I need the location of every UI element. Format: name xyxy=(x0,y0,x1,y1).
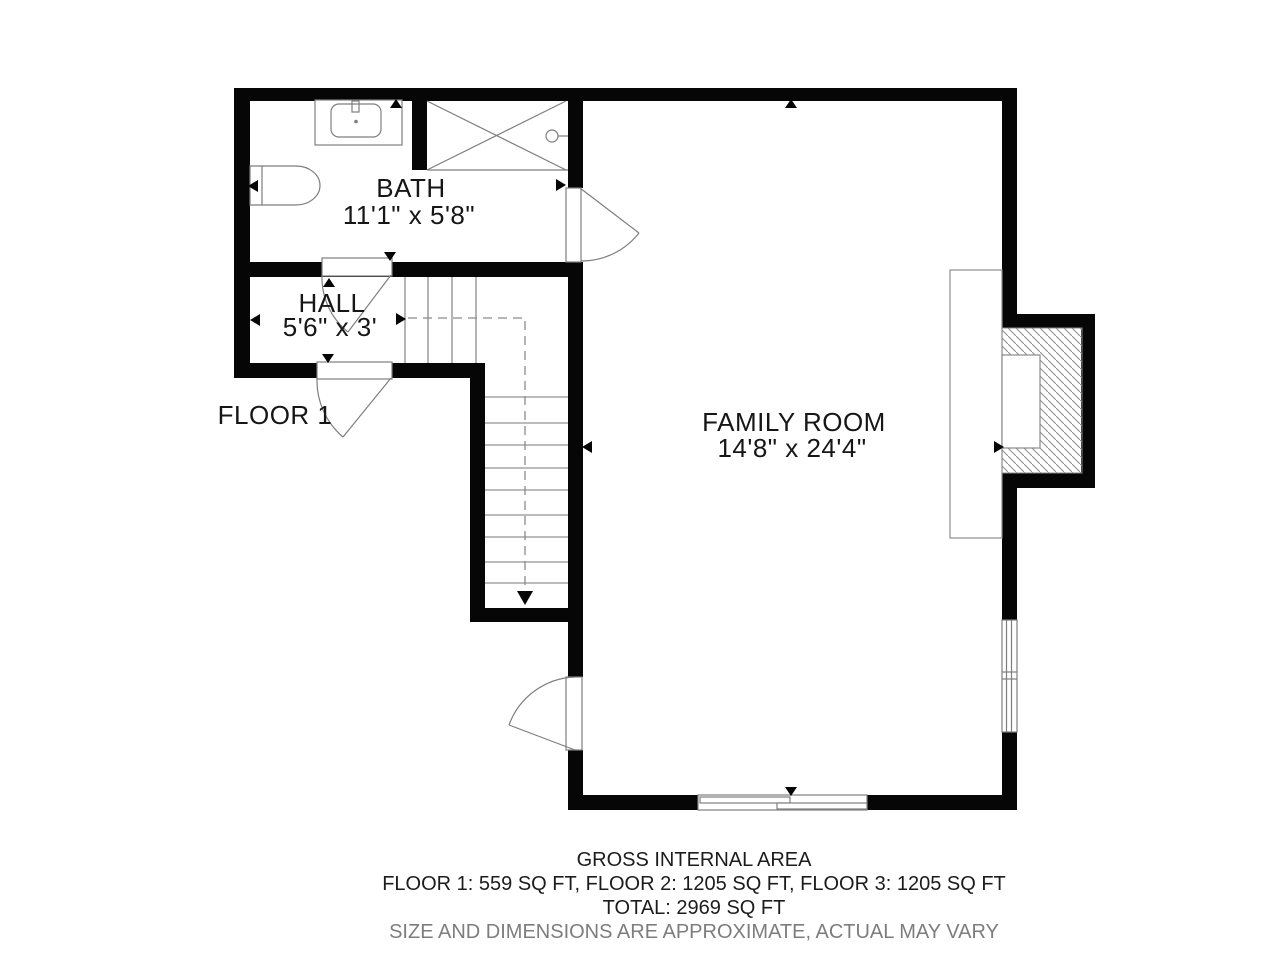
sliding-door-panel xyxy=(777,803,867,809)
wall-right-upper xyxy=(1002,88,1017,328)
marker-bath-right xyxy=(556,179,566,191)
shower xyxy=(427,101,568,170)
door-leaf xyxy=(566,188,581,262)
gross-internal-area-title: GROSS INTERNAL AREA xyxy=(244,848,1144,872)
staircase xyxy=(405,277,568,605)
door-swing xyxy=(343,378,391,437)
wall-fireplace-right xyxy=(1081,314,1095,488)
floor-areas-line: FLOOR 1: 559 SQ FT, FLOOR 2: 1205 SQ FT,… xyxy=(244,872,1144,896)
wall-left xyxy=(234,88,250,378)
wall-right-lower xyxy=(1002,732,1017,810)
bath-label: BATH xyxy=(376,173,445,203)
floor-plan-drawing: BATH 11'1" x 5'8" HALL 5'6" x 3' FLOOR 1… xyxy=(0,0,1280,960)
door-leaf xyxy=(566,677,582,750)
toilet xyxy=(250,166,320,205)
wall-shower-stub xyxy=(412,101,427,170)
shower-head-icon xyxy=(546,130,558,142)
marker-family-left xyxy=(582,441,592,453)
marker-hall-top xyxy=(323,278,335,287)
room-labels: BATH 11'1" x 5'8" HALL 5'6" x 3' FLOOR 1… xyxy=(218,173,886,463)
floor-plan-page: BATH 11'1" x 5'8" HALL 5'6" x 3' FLOOR 1… xyxy=(0,0,1280,960)
floor-label: FLOOR 1 xyxy=(218,400,333,430)
window-frame xyxy=(1002,620,1017,732)
total-area-line: TOTAL: 2969 SQ FT xyxy=(244,896,1144,920)
sink-drain xyxy=(354,120,358,124)
door-swing xyxy=(580,188,639,233)
door-swing-arc xyxy=(581,233,639,261)
wall-mid-upper xyxy=(568,101,583,188)
right-wall-window xyxy=(1002,620,1017,732)
wall-top xyxy=(234,88,1017,101)
door-frame xyxy=(322,258,392,276)
family-room-door xyxy=(509,677,582,750)
door-frame xyxy=(317,362,392,379)
wall-fireplace-bottom xyxy=(1002,473,1095,488)
door-swing-arc xyxy=(509,677,575,725)
vanity-sink xyxy=(315,100,402,145)
wall-stair-bottom xyxy=(470,608,583,622)
wall-bath-bottom xyxy=(234,262,583,277)
footer-area-summary: GROSS INTERNAL AREA FLOOR 1: 559 SQ FT, … xyxy=(244,848,1144,944)
hearth-outline xyxy=(950,270,1002,538)
wall-mid-main xyxy=(568,262,583,677)
wall-right-mid xyxy=(1002,473,1017,620)
hall-dimensions: 5'6" x 3' xyxy=(283,312,377,342)
toilet-outline xyxy=(250,166,320,205)
door-swing xyxy=(509,725,575,750)
disclaimer-line: SIZE AND DIMENSIONS ARE APPROXIMATE, ACT… xyxy=(244,920,1144,944)
marker-hall-left xyxy=(250,314,260,326)
firebox xyxy=(1002,355,1040,448)
bath-dimensions: 11'1" x 5'8" xyxy=(343,200,475,230)
wall-stair-left xyxy=(470,363,485,622)
windows xyxy=(698,620,1017,810)
stair-direction-path xyxy=(408,318,525,591)
bath-door xyxy=(566,188,639,262)
sliding-door xyxy=(698,795,867,810)
family-room-dimensions: 14'8" x 24'4" xyxy=(717,433,866,463)
sliding-door-panel xyxy=(700,797,790,803)
stair-down-arrow xyxy=(517,591,533,605)
